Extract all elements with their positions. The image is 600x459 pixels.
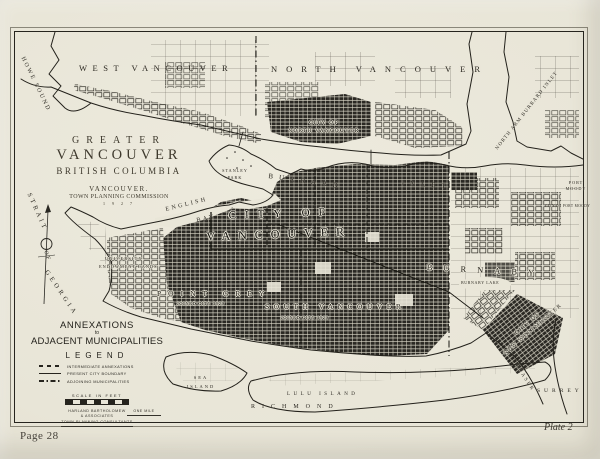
label-richmond: RICHMOND (251, 404, 340, 411)
credit-line3: TOWN PLANNING CONSULTANTS (61, 420, 133, 427)
legend-dash-dot-line-swatch (39, 380, 61, 382)
scale-label: SCALE IN FEET (21, 393, 173, 398)
legend-dashed-line-swatch (39, 365, 61, 367)
label-point-grey: POINT GREY (157, 289, 271, 298)
compass-north-arrow-icon (35, 204, 59, 308)
label-point-grey-note: JOINED CITY 1929 (177, 301, 225, 306)
label-city-of-north-vancouver-line1: CITY OF (281, 120, 367, 128)
legend-items: INTERMEDIATE ANNEXATIONS PRESENT CITY BO… (39, 364, 155, 384)
legend-title: LEGEND (21, 351, 173, 360)
legend-item-label: PRESENT CITY BOUNDARY (67, 371, 127, 376)
legend-item-label: ADJOINING MUNICIPALITIES (67, 379, 130, 384)
label-city-of-north-vancouver: CITY OF NORTH VANCOUVER (281, 120, 367, 136)
stanley-park-trees (226, 151, 252, 169)
label-south-vancouver-note: JOINED CITY 1929 (281, 315, 329, 320)
title-commission-line1: VANCOUVER. (43, 185, 195, 193)
label-university: UNIVERSITY (105, 256, 143, 261)
title-region: GREATER (43, 135, 195, 146)
title-province: BRITISH COLUMBIA (43, 166, 195, 176)
label-burnaby-lake: BURNABY LAKE (461, 281, 499, 286)
label-north-vancouver: NORTH VANCOUVER (271, 64, 489, 74)
label-west-vancouver: WEST VANCOUVER (79, 63, 233, 73)
scanned-book-page: HOWE SOUND WEST VANCOUVER NORTH VANCOUVE… (0, 0, 600, 459)
label-south-vancouver: SOUTH VANCOUVER (265, 302, 405, 311)
label-lulu-island: LULU ISLAND (287, 392, 358, 398)
title-city: VANCOUVER (43, 147, 195, 164)
map-title-block: GREATER VANCOUVER BRITISH COLUMBIA VANCO… (43, 135, 195, 206)
map-frame: HOWE SOUND WEST VANCOUVER NORTH VANCOUVE… (14, 31, 584, 423)
title-year: 1 9 2 7 (43, 201, 195, 206)
title-commission-line2: TOWN PLANNING COMMISSION (43, 194, 195, 200)
legend-solid-line-swatch (39, 373, 61, 375)
page-number: Page 28 (20, 430, 59, 442)
scale-bar (65, 399, 129, 405)
one-mile-line (127, 415, 161, 416)
label-sea: SEA (181, 373, 221, 382)
plate-number: Plate 2 (544, 422, 573, 433)
legend-item-present-city-boundary: PRESENT CITY BOUNDARY (39, 371, 155, 376)
label-sea-island: SEA ISLAND (181, 373, 221, 392)
scale-section: SCALE IN FEET (21, 393, 173, 405)
one-mile-scale: ONE MILE (127, 409, 161, 416)
legend-item-adjoining-municipalities: ADJOINING MUNICIPALITIES (39, 379, 155, 384)
legend-item-label: INTERMEDIATE ANNEXATIONS (67, 364, 134, 369)
label-port-moody: PORT MOODY (563, 180, 589, 193)
label-island: ISLAND (181, 382, 221, 391)
label-endowment-lands: ENDOWMENT LANDS (99, 264, 157, 269)
label-surrey: SURREY (537, 388, 583, 395)
one-mile-label: ONE MILE (127, 409, 161, 413)
annexations-heading-line2: ADJACENT MUNICIPALITIES (21, 336, 173, 347)
legend-item-intermediate-annexations: INTERMEDIATE ANNEXATIONS (39, 364, 155, 369)
label-stanley-park: STANLEY PARK (219, 168, 251, 181)
label-city-of-north-vancouver-line2: NORTH VANCOUVER (281, 128, 367, 136)
label-city-of-port-moody: CITY OF PORT MOODY (545, 204, 590, 208)
